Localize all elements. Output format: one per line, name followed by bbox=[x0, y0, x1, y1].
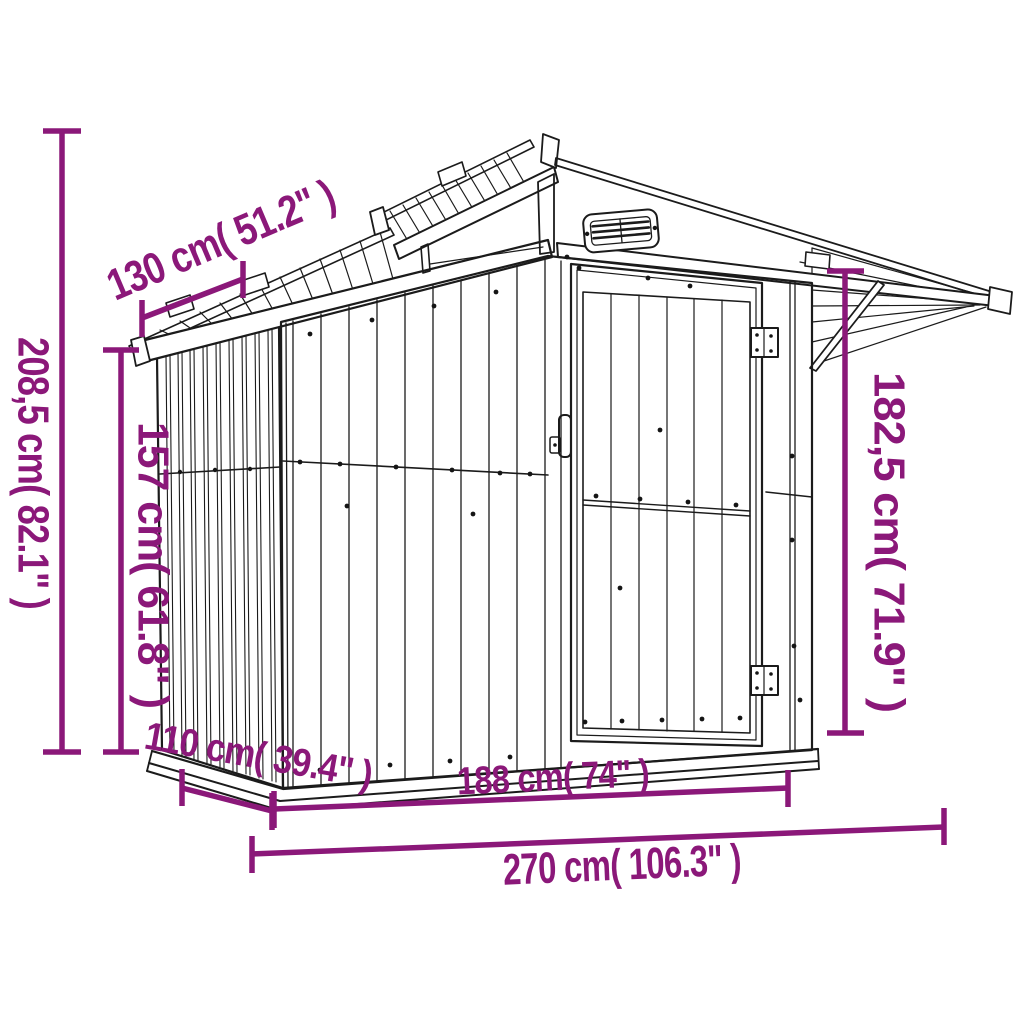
label-total-height: 208,5 cm( 82.1" ) bbox=[8, 337, 57, 609]
diagram-svg: 208,5 cm( 82.1" ) 157 cm( 61.8" ) 130 cm… bbox=[0, 0, 1024, 1024]
front-wall-seam bbox=[283, 461, 548, 475]
label-eave-height: 182,5 cm( 71.9" ) bbox=[864, 372, 913, 712]
roof-bracket bbox=[805, 252, 830, 269]
label-front-width: 188 cm( 74" ) bbox=[456, 752, 650, 803]
door-hinge-bottom bbox=[751, 666, 778, 695]
front-wall bbox=[281, 256, 812, 788]
gable-vent-louver bbox=[582, 209, 659, 253]
shed-dimension-diagram: 208,5 cm( 82.1" ) 157 cm( 61.8" ) 130 cm… bbox=[0, 0, 1024, 1024]
cupola-right-cap bbox=[541, 134, 559, 168]
door-hinge-top bbox=[751, 328, 778, 357]
roof-right-end-cap bbox=[988, 287, 1012, 314]
door bbox=[550, 264, 778, 746]
label-wall-height: 157 cm( 61.8" ) bbox=[128, 422, 177, 708]
front-wall-panel-lines bbox=[293, 259, 795, 787]
label-total-width: 270 cm( 106.3" ) bbox=[502, 835, 742, 894]
